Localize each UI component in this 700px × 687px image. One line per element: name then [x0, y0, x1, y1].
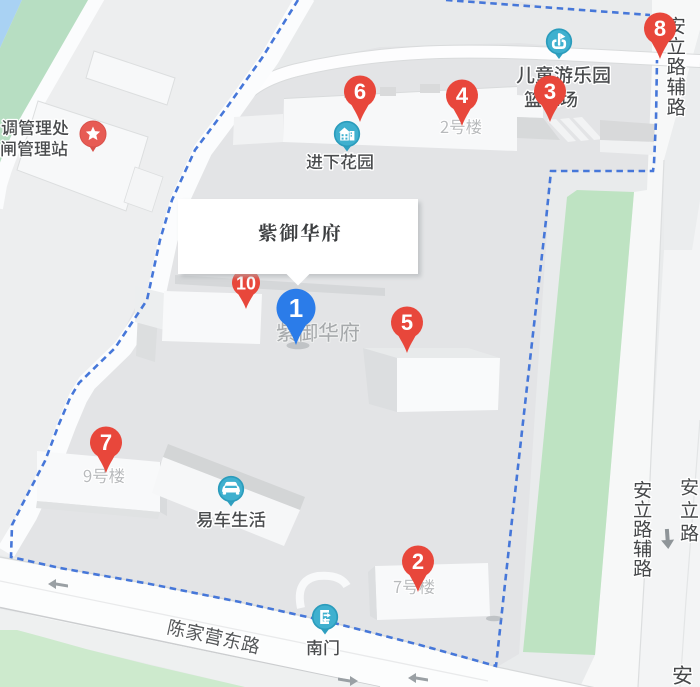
svg-text:8: 8 [654, 16, 666, 41]
svg-text:4: 4 [456, 83, 469, 108]
svg-text:6: 6 [354, 79, 366, 104]
svg-text:7: 7 [100, 430, 112, 455]
svg-text:5: 5 [401, 310, 413, 335]
svg-text:2: 2 [412, 549, 424, 574]
svg-text:3: 3 [544, 79, 556, 104]
svg-text:1: 1 [289, 293, 303, 323]
